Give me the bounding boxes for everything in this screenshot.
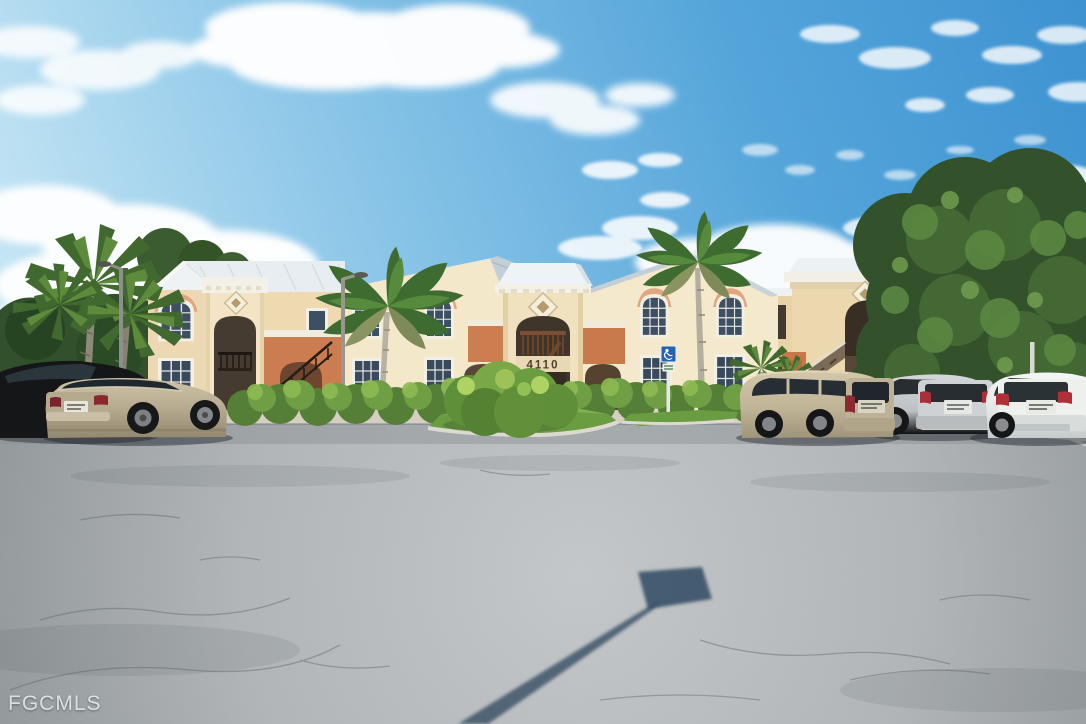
license-plate (1026, 400, 1056, 414)
watermark: FGCMLS (8, 692, 102, 716)
vehicle-gold-minivan (736, 370, 900, 446)
listing-photo: 4110 (0, 0, 1086, 724)
scene-canvas: 4110 (0, 0, 1086, 724)
license-plate (64, 401, 88, 413)
license-plate (858, 400, 885, 413)
license-plate (944, 400, 972, 414)
